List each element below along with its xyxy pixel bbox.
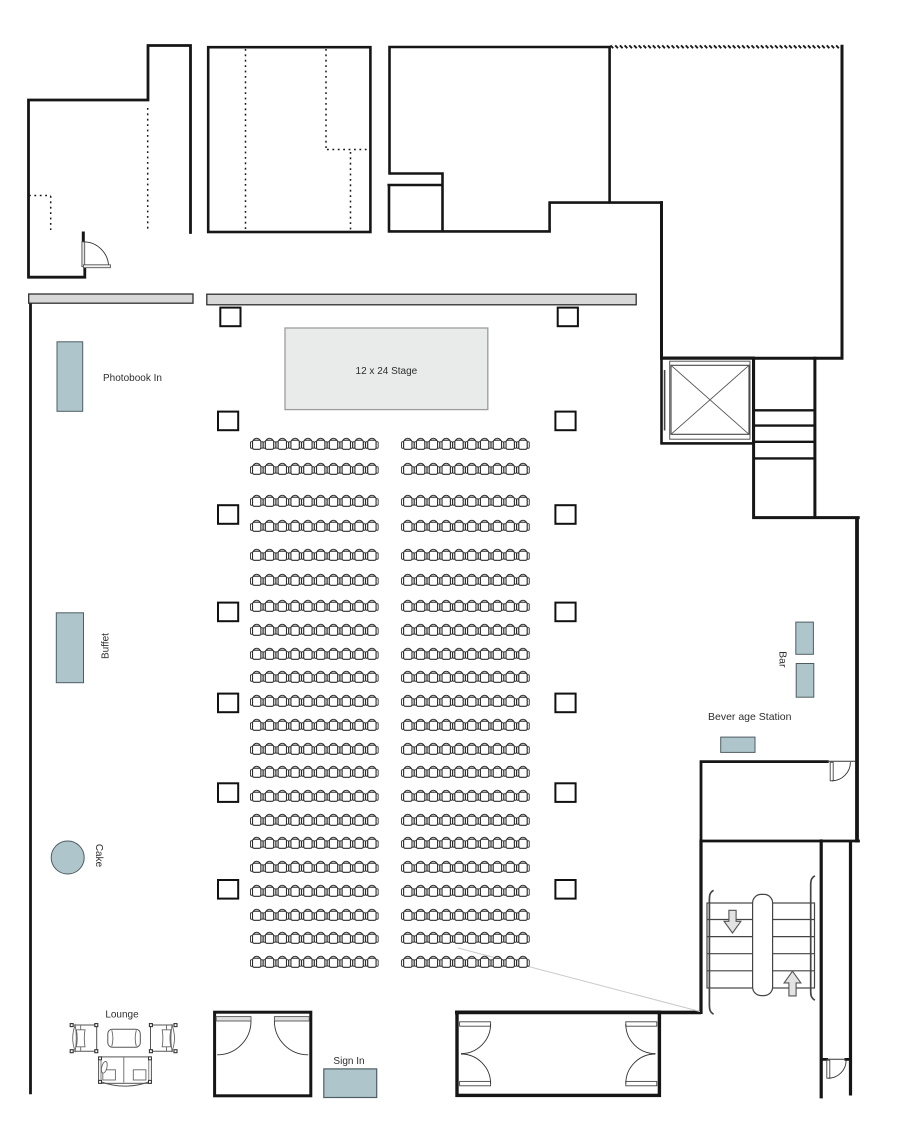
svg-text:Photobook In: Photobook In [103, 373, 162, 384]
svg-text:Bever age Station: Bever age Station [708, 711, 792, 723]
svg-text:12 x 24 Stage: 12 x 24 Stage [356, 366, 418, 377]
svg-text:Cake: Cake [93, 844, 104, 868]
svg-text:Buffet: Buffet [101, 633, 112, 659]
svg-text:Lounge: Lounge [105, 1010, 139, 1021]
svg-text:Sign In: Sign In [333, 1056, 364, 1067]
svg-text:Bar: Bar [776, 651, 788, 668]
